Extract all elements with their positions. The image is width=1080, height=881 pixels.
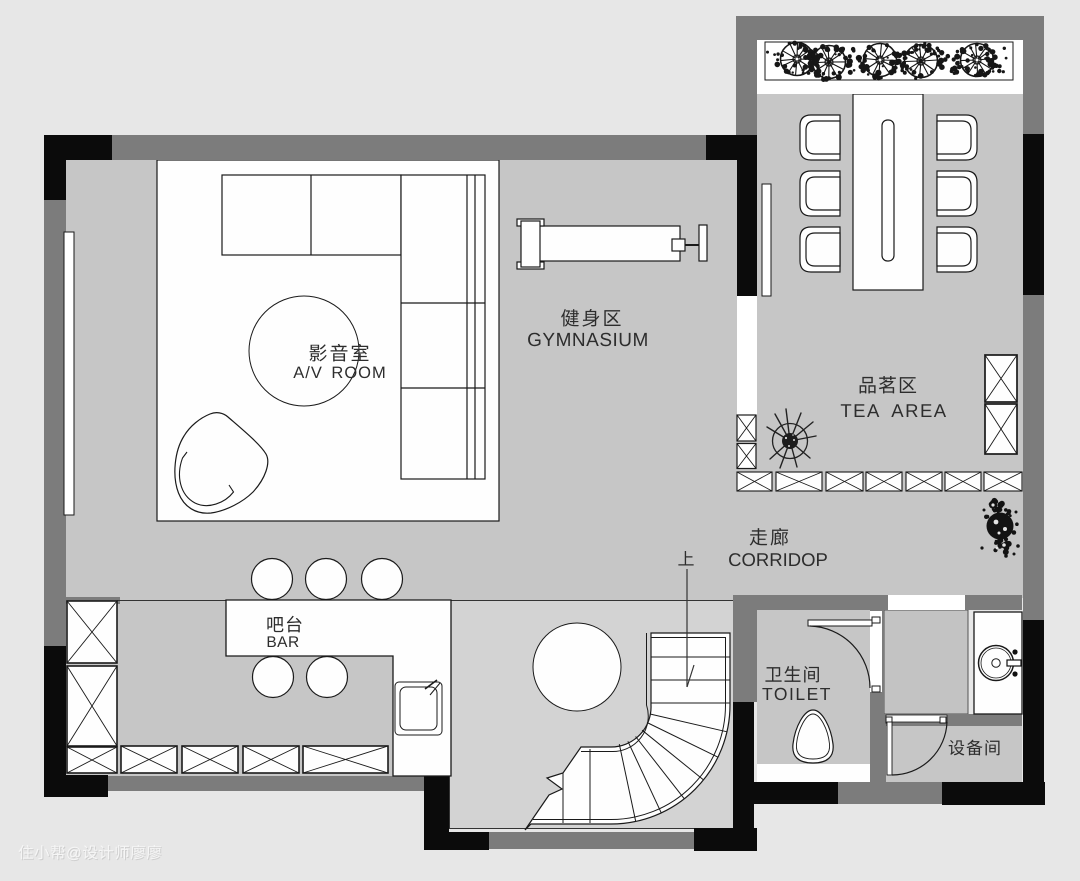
svg-text:健身区: 健身区 bbox=[560, 308, 623, 330]
svg-text:CORRIDOP: CORRIDOP bbox=[728, 549, 828, 570]
svg-text:BAR: BAR bbox=[266, 634, 299, 651]
svg-text:GYMNASIUM: GYMNASIUM bbox=[527, 330, 649, 351]
svg-text:TEA AREA: TEA AREA bbox=[840, 400, 947, 421]
svg-text:走廊: 走廊 bbox=[749, 527, 791, 549]
svg-text:品茗区: 品茗区 bbox=[858, 376, 918, 397]
svg-text:A/V ROOM: A/V ROOM bbox=[293, 364, 387, 382]
svg-text:影音室: 影音室 bbox=[308, 343, 371, 365]
svg-text:吧台: 吧台 bbox=[266, 615, 304, 635]
svg-text:卫生间: 卫生间 bbox=[765, 665, 822, 685]
svg-text:设备间: 设备间 bbox=[948, 739, 1002, 758]
svg-text:住小帮@设计师廖廖: 住小帮@设计师廖廖 bbox=[18, 844, 162, 862]
svg-text:TOILET: TOILET bbox=[762, 684, 832, 704]
svg-text:上: 上 bbox=[678, 550, 695, 569]
